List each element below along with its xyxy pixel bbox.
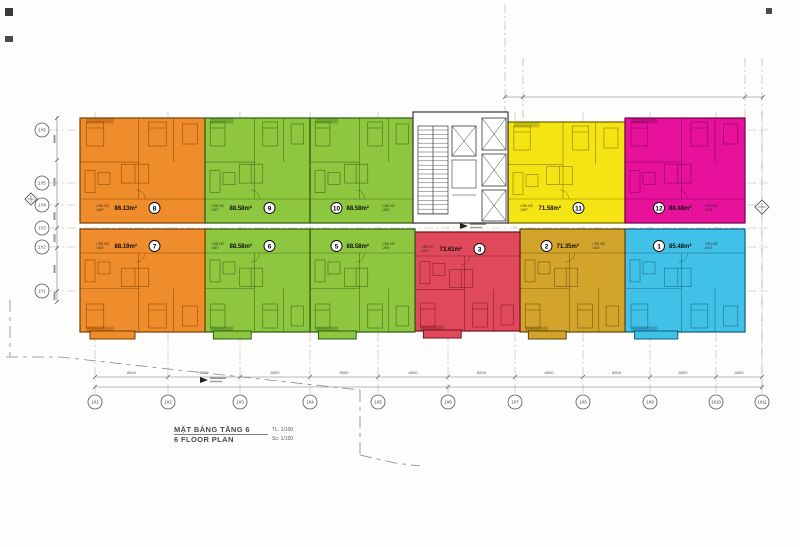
unit-area: 73.61m² <box>440 246 462 253</box>
grid-bubble-left-3: 1Y3 <box>35 221 49 235</box>
unit-tag-en: UNIT <box>705 208 712 212</box>
plan-scale-sc: Sc: 1/100 <box>272 436 293 442</box>
dim-number-mark <box>54 292 56 300</box>
grid-bubble-bottom-10: 1X11 <box>755 395 769 409</box>
dimension-label: 8500 <box>271 370 281 375</box>
dim-number-mark <box>54 212 56 220</box>
unit-12-balcony <box>631 119 657 124</box>
unit-tag-en: UNIT <box>521 208 528 212</box>
dimension-label: 4600 <box>735 370 745 375</box>
grid-bubble-bottom-0-label: 1X1 <box>91 400 99 405</box>
unit-number: 3 <box>478 246 482 253</box>
dim-number-mark <box>54 265 56 273</box>
unit-1-balcony-bump <box>635 331 678 339</box>
grid-bubble-bottom-2: 1X3 <box>233 395 247 409</box>
unit-area: 88.48m² <box>669 205 691 212</box>
grid-bubble-bottom-6-label: 1X7 <box>511 400 519 405</box>
grid-bubble-bottom-5-label: 1X6 <box>444 400 452 405</box>
grid-bubble-left-2-label: 1Y4 <box>38 203 46 208</box>
grid-bubble-left-0-label: 1Y6 <box>38 128 46 133</box>
scan-mark <box>766 8 772 14</box>
unit-number: 6 <box>268 243 272 250</box>
grid-bubble-left-5-label: 1Y1 <box>38 289 46 294</box>
dim-number-mark <box>54 234 56 242</box>
corridor-flag-marker-note <box>470 224 486 225</box>
grid-bubble-left-2: 1Y4 <box>35 198 49 212</box>
grid-bubble-bottom-0: 1X1 <box>88 395 102 409</box>
unit-area: 88.58m² <box>230 205 252 212</box>
grid-bubble-bottom-1: 1X2 <box>161 395 175 409</box>
unit-6-balcony-bump <box>213 331 251 339</box>
dimension-label: 8500 <box>127 370 137 375</box>
unit-tag-en: UNIT <box>383 246 390 250</box>
floor-plan-drawing: 8500850085008500850085008500850085004600… <box>0 0 800 547</box>
unit-number: 9 <box>268 205 272 212</box>
unit-number: 8 <box>153 205 157 212</box>
grid-bubble-bottom-10-label: 1X11 <box>757 400 767 405</box>
unit-tag-en: UNIT <box>383 208 390 212</box>
grid-bubble-bottom-1-label: 1X2 <box>164 400 172 405</box>
grid-bubble-bottom-6: 1X7 <box>508 395 522 409</box>
grid-bubble-bottom-9-label: 1X10 <box>711 400 721 405</box>
grid-bubble-left-3-label: 1Y3 <box>38 226 46 231</box>
unit-7-balcony-bump <box>90 331 135 339</box>
grid-bubble-bottom-3: 1X4 <box>303 395 317 409</box>
unit-tag-en: UNIT <box>212 246 219 250</box>
dimension-label: 8500 <box>340 370 350 375</box>
scan-mark <box>5 36 13 42</box>
dim-number-mark <box>54 178 56 186</box>
unit-11-balcony <box>514 123 540 128</box>
unit-10-balcony <box>315 119 338 124</box>
dimension-label: 8500 <box>477 370 487 375</box>
floor-plan-page: 8500850085008500850085008500850085004600… <box>0 0 800 547</box>
grid-bubble-bottom-8: 1X9 <box>643 395 657 409</box>
plan-title-vn: MẶT BẰNG TẦNG 6 <box>174 424 250 434</box>
grid-bubble-bottom-2-label: 1X3 <box>236 400 244 405</box>
grid-bubble-left-1-label: 1Y5 <box>38 181 46 186</box>
unit-tag-en: UNIT <box>97 208 104 212</box>
grid-bubble-left-1: 1Y5 <box>35 176 49 190</box>
plan-scale-tl: TL: 1/100 <box>272 427 293 433</box>
core-outline <box>413 112 508 223</box>
unit-number: 5 <box>335 243 339 250</box>
unit-tag-en: UNIT <box>422 249 429 253</box>
unit-area: 71.58m² <box>539 205 561 212</box>
unit-5-balcony-bump <box>318 331 356 339</box>
dim-number-mark <box>54 135 56 143</box>
plan-title-en: 6 FLOOR PLAN <box>174 435 234 444</box>
unit-area: 88.58m² <box>230 243 252 250</box>
title-block: MẶT BẰNG TẦNG 6 6 FLOOR PLAN TL: 1/100 S… <box>174 424 293 444</box>
dimension-label: 8500 <box>612 370 622 375</box>
grid-bubble-left-4: 1Y2 <box>35 240 49 254</box>
grid-bubble-left-0: 1Y6 <box>35 123 49 137</box>
unit-number: 1 <box>657 243 661 250</box>
site-flag-marker-note <box>210 378 226 379</box>
dimension-label: 8500 <box>545 370 555 375</box>
unit-8-balcony <box>86 119 114 124</box>
site-flag-marker-triangle <box>200 377 208 383</box>
grid-bubble-bottom-7: 1X8 <box>576 395 590 409</box>
unit-number: 2 <box>545 243 549 250</box>
unit-tag-en: UNIT <box>212 208 219 212</box>
grid-bubble-bottom-7-label: 1X8 <box>579 400 587 405</box>
dimension-label: 8500 <box>409 370 419 375</box>
unit-area: 71.35m² <box>557 243 579 250</box>
unit-area: 88.58m² <box>347 205 369 212</box>
unit-number: 11 <box>575 205 582 212</box>
grid-bubble-bottom-4: 1X5 <box>371 395 385 409</box>
grid-bubble-left-4-label: 1Y2 <box>38 245 46 250</box>
grid-bubble-bottom-9: 1X10 <box>709 395 723 409</box>
grid-bubble-bottom-3-label: 1X4 <box>306 400 314 405</box>
site-flag-marker <box>200 377 226 383</box>
unit-9-balcony <box>210 119 233 124</box>
unit-number: 7 <box>153 243 157 250</box>
unit-number: 12 <box>655 205 663 212</box>
unit-2-balcony-bump <box>528 331 566 339</box>
unit-area: 86.13m² <box>115 205 137 212</box>
unit-area: 85.48m² <box>669 243 691 250</box>
scan-mark <box>5 8 13 16</box>
unit-tag-en: UNIT <box>593 246 600 250</box>
unit-number: 10 <box>333 205 341 212</box>
unit-3-balcony-bump <box>423 330 461 338</box>
grid-bubble-bottom-4-label: 1X5 <box>374 400 382 405</box>
site-flag-marker-note <box>210 381 222 382</box>
grid-bubble-bottom-5: 1X6 <box>441 395 455 409</box>
unit-tag-en: UNIT <box>705 246 712 250</box>
unit-area: 88.19m² <box>115 243 137 250</box>
grid-bubble-left-5: 1Y1 <box>35 284 49 298</box>
corridor-flag-marker-note <box>470 227 482 228</box>
stair-core <box>413 112 508 223</box>
grid-bubble-bottom-8-label: 1X9 <box>646 400 654 405</box>
north-diamond-marker <box>755 200 769 214</box>
unit-area: 88.58m² <box>347 243 369 250</box>
dimension-label: 8500 <box>679 370 689 375</box>
unit-tag-en: UNIT <box>97 246 104 250</box>
